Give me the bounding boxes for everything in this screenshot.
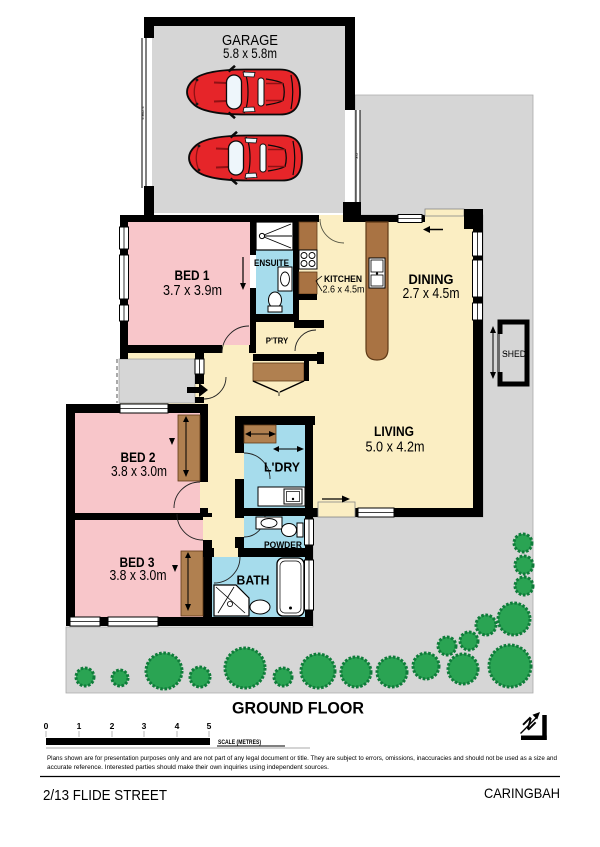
svg-text:2: 2 xyxy=(110,721,115,731)
svg-text:0: 0 xyxy=(44,721,49,731)
svg-text:3.8 x 3.0m: 3.8 x 3.0m xyxy=(110,568,167,584)
svg-text:3.8 x 3.0m: 3.8 x 3.0m xyxy=(111,464,167,480)
svg-text:3.7 x 3.9m: 3.7 x 3.9m xyxy=(163,283,222,299)
svg-text:3.0: 3.0 xyxy=(354,152,359,158)
svg-text:GROUND FLOOR: GROUND FLOOR xyxy=(232,699,364,718)
svg-text:SHED: SHED xyxy=(502,349,526,359)
svg-text:P'TRY: P'TRY xyxy=(266,336,289,346)
svg-text:LIVING: LIVING xyxy=(374,424,414,439)
svg-text:1: 1 xyxy=(77,721,82,731)
svg-text:CARINGBAH: CARINGBAH xyxy=(484,785,560,801)
svg-text:5.0 x 4.2m: 5.0 x 4.2m xyxy=(366,440,425,456)
svg-text:2/13 FLIDE STREET: 2/13 FLIDE STREET xyxy=(43,788,167,804)
svg-text:Plans shown are for presentati: Plans shown are for presentation purpose… xyxy=(47,755,557,762)
svg-text:5.8 x 5.8m: 5.8 x 5.8m xyxy=(223,45,277,61)
svg-text:5: 5 xyxy=(207,721,212,731)
svg-text:accurate reference. Interested: accurate reference. Interested parties s… xyxy=(47,764,329,771)
svg-text:SCALE (METRES): SCALE (METRES) xyxy=(218,740,261,746)
svg-text:DINING: DINING xyxy=(409,272,454,287)
svg-text:4.8x2.4: 4.8x2.4 xyxy=(140,106,145,120)
svg-text:L'DRY: L'DRY xyxy=(264,460,300,475)
svg-text:BATH: BATH xyxy=(237,574,270,588)
svg-text:2.6 x 4.5m: 2.6 x 4.5m xyxy=(323,284,365,296)
svg-text:BED 2: BED 2 xyxy=(121,450,156,465)
svg-text:3: 3 xyxy=(142,721,147,731)
svg-text:4: 4 xyxy=(175,721,180,731)
svg-text:2.7 x 4.5m: 2.7 x 4.5m xyxy=(403,286,460,302)
svg-text:BED 1: BED 1 xyxy=(175,268,210,283)
